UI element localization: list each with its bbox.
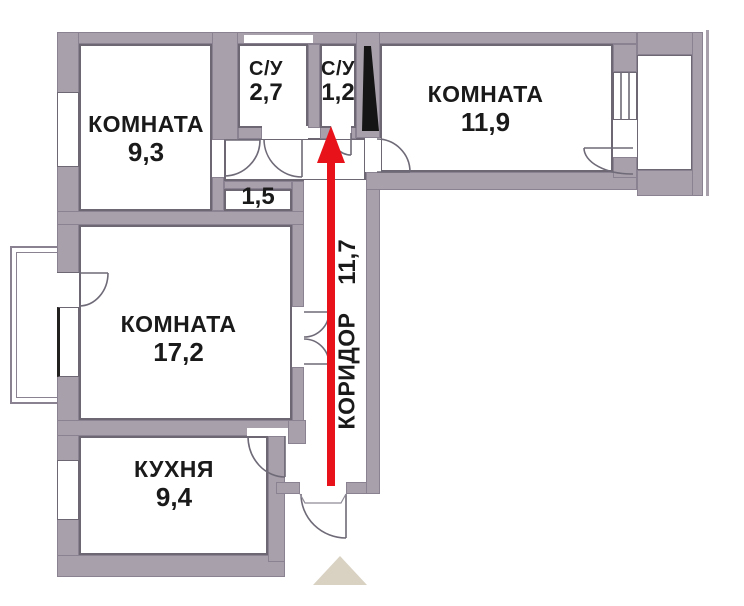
room-label-bath-2-7: С/У 2,7 [226,58,306,107]
room-area: 9,4 [79,483,269,512]
balcony-right-floor [637,55,692,170]
floor-plan: КОМНАТА 9,3 С/У 2,7 С/У 1,2 КОМНАТА 11,9… [0,0,744,606]
window-kitchen [57,460,79,520]
wall [268,436,285,562]
wall [238,127,262,139]
door-opening-bath-2-7 [262,126,308,139]
wall [288,420,306,444]
room-label-kitchen: КУХНЯ 9,4 [79,457,269,512]
room-name: С/У [226,58,306,80]
wall [57,211,304,225]
balcony-outer-line [706,30,709,196]
wall [613,44,637,72]
door-opening-room-17-2 [292,307,304,367]
room-area: 1,2 [312,80,364,107]
room-name: КОМНАТА [72,312,285,338]
wall [366,172,380,494]
window-room-11-9 [613,72,637,120]
room-label-17-2: КОМНАТА 17,2 [72,312,285,367]
room-label-bath-1-2: С/У 1,2 [312,58,364,107]
room-area: 1,5 [241,183,274,210]
entrance-threshold [300,494,346,503]
door-opening-bath-1-2 [331,126,351,139]
hallway-floor [224,138,366,181]
wall [613,157,637,178]
window-room-9-3 [57,92,79,167]
vent-window-top-wall [244,35,313,44]
wall [320,127,331,139]
wall [57,32,637,44]
room-name: С/У [312,58,364,80]
wall [366,172,637,190]
door-opening-kitchen [247,428,288,436]
corridor-area-label: 11,7 [334,239,362,284]
closet-label-1-5: 1,5 [224,184,292,211]
room-name: КУХНЯ [79,457,269,483]
balcony-door-opening-11-9 [613,120,637,157]
wall [292,181,304,307]
entrance-door-arc [301,494,346,538]
room-label-9-3: КОМНАТА 9,3 [79,112,213,167]
room-name: КОМНАТА [368,82,603,108]
room-area: 17,2 [72,338,285,367]
room-name: КОМНАТА [79,112,213,138]
wall [57,555,285,577]
wall [276,482,300,494]
door-opening-room-11-9 [365,138,381,172]
corridor-name-label: КОРИДОР [334,313,361,430]
balcony-wall [692,32,703,196]
room-area: 9,3 [79,138,213,167]
door-opening-room-9-3 [212,140,224,177]
entrance-marker-triangle [313,556,367,585]
balcony-left-inner-line [16,252,57,398]
entrance-opening [300,482,346,494]
room-area: 2,7 [226,80,306,107]
room-label-11-9: КОМНАТА 11,9 [368,82,603,137]
balcony-door-opening-17-2 [57,272,79,309]
room-area: 11,9 [368,108,603,137]
wall [212,177,224,211]
